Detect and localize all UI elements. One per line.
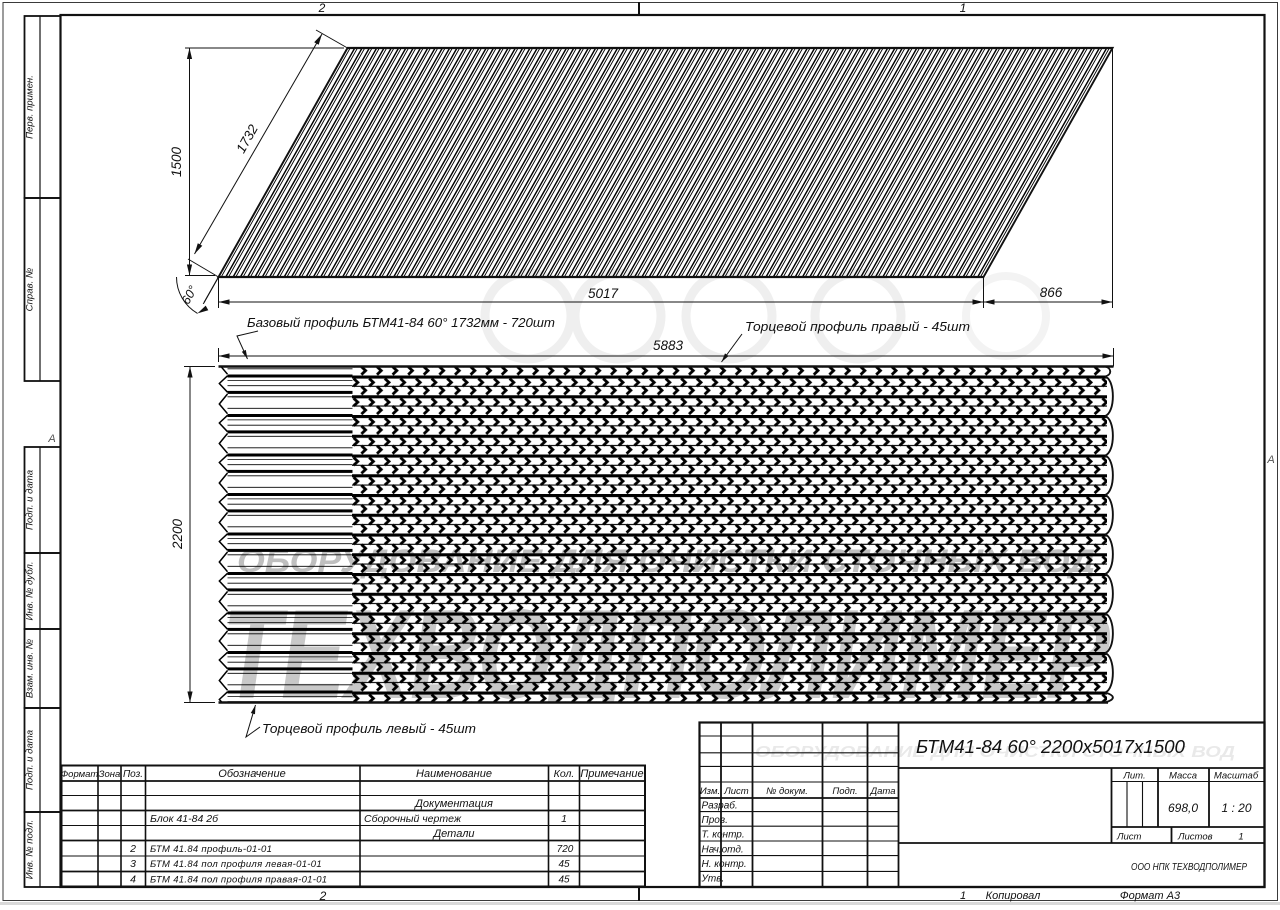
svg-text:1: 1 [1238, 832, 1243, 843]
svg-text:1: 1 [960, 1, 967, 15]
svg-text:Блок 41-84 2б: Блок 41-84 2б [150, 813, 219, 825]
svg-text:Перв. примен.: Перв. примен. [25, 75, 36, 139]
svg-text:Подп. и дата: Подп. и дата [25, 730, 36, 790]
svg-text:А: А [47, 433, 55, 445]
svg-text:А: А [1266, 454, 1274, 466]
svg-text:4: 4 [130, 873, 136, 885]
svg-text:Пров.: Пров. [702, 815, 728, 826]
svg-text:БТМ 41.84 пол профиля правая-0: БТМ 41.84 пол профиля правая-01-01 [150, 874, 327, 885]
svg-text:5017: 5017 [588, 286, 619, 301]
svg-text:Инв. № дубл.: Инв. № дубл. [25, 561, 36, 620]
svg-text:Формат: Формат [61, 769, 99, 780]
svg-text:3: 3 [130, 858, 136, 870]
svg-text:Лист: Лист [1116, 832, 1142, 843]
svg-text:Копировал: Копировал [986, 890, 1041, 902]
svg-text:Примечание: Примечание [580, 768, 643, 780]
svg-text:Детали: Детали [431, 828, 474, 840]
svg-text:Подп. и дата: Подп. и дата [25, 470, 36, 530]
svg-text:Н. контр.: Н. контр. [702, 859, 747, 870]
svg-text:Утв.: Утв. [701, 874, 725, 885]
svg-text:БТМ 41.84 пол профиля левая-01: БТМ 41.84 пол профиля левая-01-01 [150, 859, 322, 870]
svg-text:Формат А3: Формат А3 [1120, 890, 1181, 902]
svg-text:Нач.отд.: Нач.отд. [702, 844, 744, 855]
svg-text:№ докум.: № докум. [766, 786, 808, 797]
svg-text:45: 45 [558, 874, 570, 885]
svg-text:1: 1 [561, 813, 567, 825]
svg-text:Сборочный чертеж: Сборочный чертеж [364, 813, 462, 825]
svg-text:2: 2 [129, 843, 136, 855]
svg-text:Лит.: Лит. [1122, 771, 1145, 782]
svg-text:Инв. № подл.: Инв. № подл. [25, 820, 36, 880]
svg-text:5883: 5883 [653, 338, 684, 353]
svg-text:45: 45 [558, 859, 570, 870]
svg-text:Торцевой профиль правый - 45шт: Торцевой профиль правый - 45шт [745, 319, 970, 334]
svg-text:698,0: 698,0 [1168, 801, 1198, 815]
svg-text:1500: 1500 [169, 146, 184, 177]
svg-text:Кол.: Кол. [554, 768, 575, 780]
svg-text:1: 1 [960, 890, 966, 902]
svg-text:Поз.: Поз. [123, 769, 143, 780]
svg-text:2200: 2200 [170, 518, 185, 550]
svg-text:Листов: Листов [1177, 832, 1213, 843]
svg-text:Наименование: Наименование [416, 768, 492, 780]
svg-text:ООО НПК ТЕХВОДПОЛИМЕР: ООО НПК ТЕХВОДПОЛИМЕР [1131, 862, 1247, 873]
svg-text:Подп.: Подп. [832, 786, 857, 797]
svg-text:Дата: Дата [869, 786, 895, 797]
svg-text:Лист: Лист [723, 786, 749, 797]
svg-text:Разраб.: Разраб. [702, 800, 738, 812]
svg-text:Изм.: Изм. [700, 786, 720, 797]
svg-text:БТМ41-84 60° 2200х5017х1500: БТМ41-84 60° 2200х5017х1500 [916, 736, 1186, 757]
svg-text:Обозначение: Обозначение [218, 768, 285, 780]
svg-text:Справ. №: Справ. № [25, 268, 36, 312]
svg-text:866: 866 [1040, 285, 1063, 300]
svg-text:2: 2 [319, 889, 327, 903]
svg-text:Зона: Зона [99, 769, 121, 780]
svg-text:Масштаб: Масштаб [1214, 771, 1259, 782]
svg-text:720: 720 [557, 844, 574, 855]
svg-text:БТМ 41.84 профиль-01-01: БТМ 41.84 профиль-01-01 [150, 844, 272, 855]
svg-text:Т. контр.: Т. контр. [702, 830, 745, 841]
svg-text:1 : 20: 1 : 20 [1221, 801, 1251, 815]
svg-text:Документация: Документация [413, 798, 493, 810]
svg-text:Масса: Масса [1169, 771, 1197, 782]
svg-text:Базовый профиль БТМ41-84 60° 1: Базовый профиль БТМ41-84 60° 1732мм - 72… [247, 315, 555, 330]
svg-text:Торцевой профиль левый - 45шт: Торцевой профиль левый - 45шт [262, 721, 476, 736]
svg-text:2: 2 [318, 1, 326, 15]
svg-text:Взам. инв. №: Взам. инв. № [25, 639, 36, 698]
